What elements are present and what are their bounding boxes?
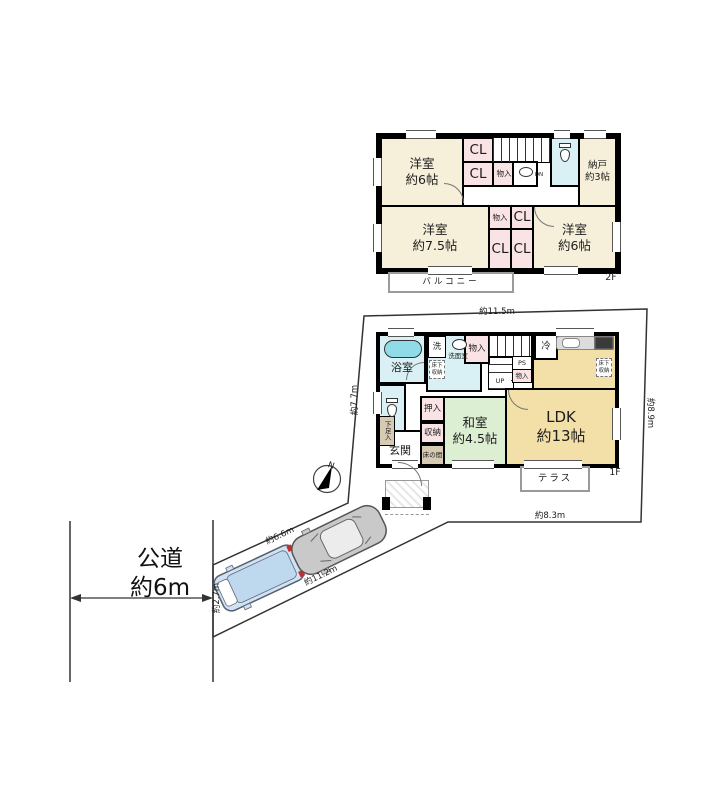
window: [373, 224, 382, 252]
terrace-1f: [520, 466, 590, 492]
toilet-tank-icon: [559, 143, 571, 148]
bathtub-icon: [384, 340, 422, 358]
porch-wall-stub: [423, 497, 431, 510]
window: [612, 222, 621, 252]
window: [554, 130, 570, 139]
window: [584, 130, 606, 139]
sliding-door-terrace: [524, 460, 582, 469]
window: [388, 328, 414, 337]
sliding-door-balcony: [428, 266, 472, 275]
sink-basin-icon: [562, 338, 580, 348]
washbasin-icon: [452, 339, 467, 350]
outline-2f: [376, 133, 621, 274]
window: [544, 266, 578, 275]
porch-wall-stub: [382, 497, 390, 510]
underfloor-storage-box: [429, 360, 445, 379]
arrowhead-right: [202, 594, 213, 602]
floorplan-canvas: 洋室 約6帖 CL CL 物入 DN 納戸 約3帖 物入 CL CL CL 洋室…: [0, 0, 702, 800]
toilet-tank-icon: [386, 398, 398, 403]
underfloor-storage-box: [596, 358, 612, 377]
washing-machine-box: [428, 336, 446, 358]
window: [612, 408, 621, 440]
stove-icon: [594, 336, 614, 350]
window: [373, 392, 382, 414]
balcony-2f: [388, 272, 514, 293]
porch-step: [385, 510, 429, 515]
window: [452, 460, 494, 469]
window: [406, 130, 436, 139]
window: [373, 158, 382, 186]
arrowhead-left: [70, 594, 81, 602]
washbasin-icon: [519, 167, 533, 177]
